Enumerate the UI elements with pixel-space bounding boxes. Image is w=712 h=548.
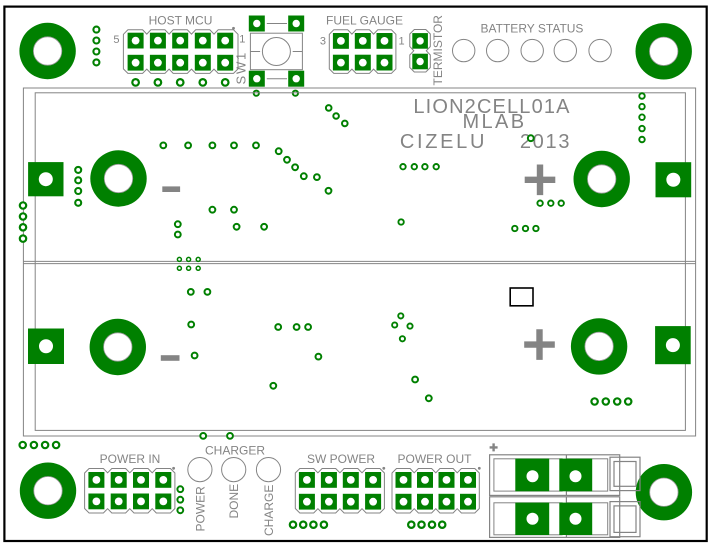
- svg-text:SW1: SW1: [234, 51, 249, 85]
- svg-text:3: 3: [320, 36, 326, 48]
- svg-text:DONE: DONE: [227, 484, 241, 519]
- svg-text:BATTERY STATUS: BATTERY STATUS: [481, 22, 584, 36]
- svg-text:HOST MCU: HOST MCU: [149, 14, 213, 28]
- svg-text:CIZELU: CIZELU: [400, 131, 487, 153]
- svg-text:SW POWER: SW POWER: [307, 452, 375, 466]
- svg-text:CHARGE: CHARGE: [262, 485, 276, 536]
- svg-text:2013: 2013: [520, 131, 571, 153]
- svg-text:POWER OUT: POWER OUT: [398, 452, 473, 466]
- svg-text:CHARGER: CHARGER: [205, 444, 265, 458]
- svg-text:POWER: POWER: [194, 486, 208, 532]
- svg-text:POWER IN: POWER IN: [100, 452, 161, 466]
- svg-text:5: 5: [113, 34, 119, 46]
- svg-text:FUEL GAUGE: FUEL GAUGE: [326, 14, 403, 28]
- svg-text:TERMISTOR: TERMISTOR: [431, 15, 445, 86]
- svg-text:MLAB: MLAB: [462, 111, 526, 133]
- svg-text:1: 1: [239, 34, 245, 46]
- svg-text:1: 1: [399, 36, 405, 48]
